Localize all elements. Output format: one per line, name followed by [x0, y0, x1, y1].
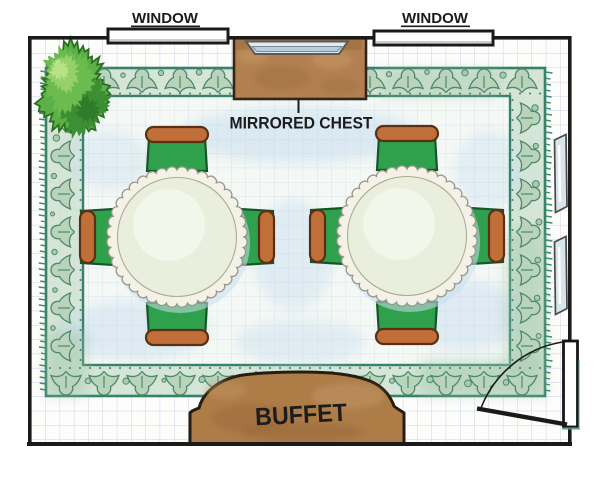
svg-text:BUFFET: BUFFET	[254, 399, 347, 432]
svg-text:WINDOW: WINDOW	[132, 10, 199, 27]
svg-text:WINDOW: WINDOW	[402, 10, 469, 27]
svg-text:MIRRORED CHEST: MIRRORED CHEST	[230, 115, 373, 133]
